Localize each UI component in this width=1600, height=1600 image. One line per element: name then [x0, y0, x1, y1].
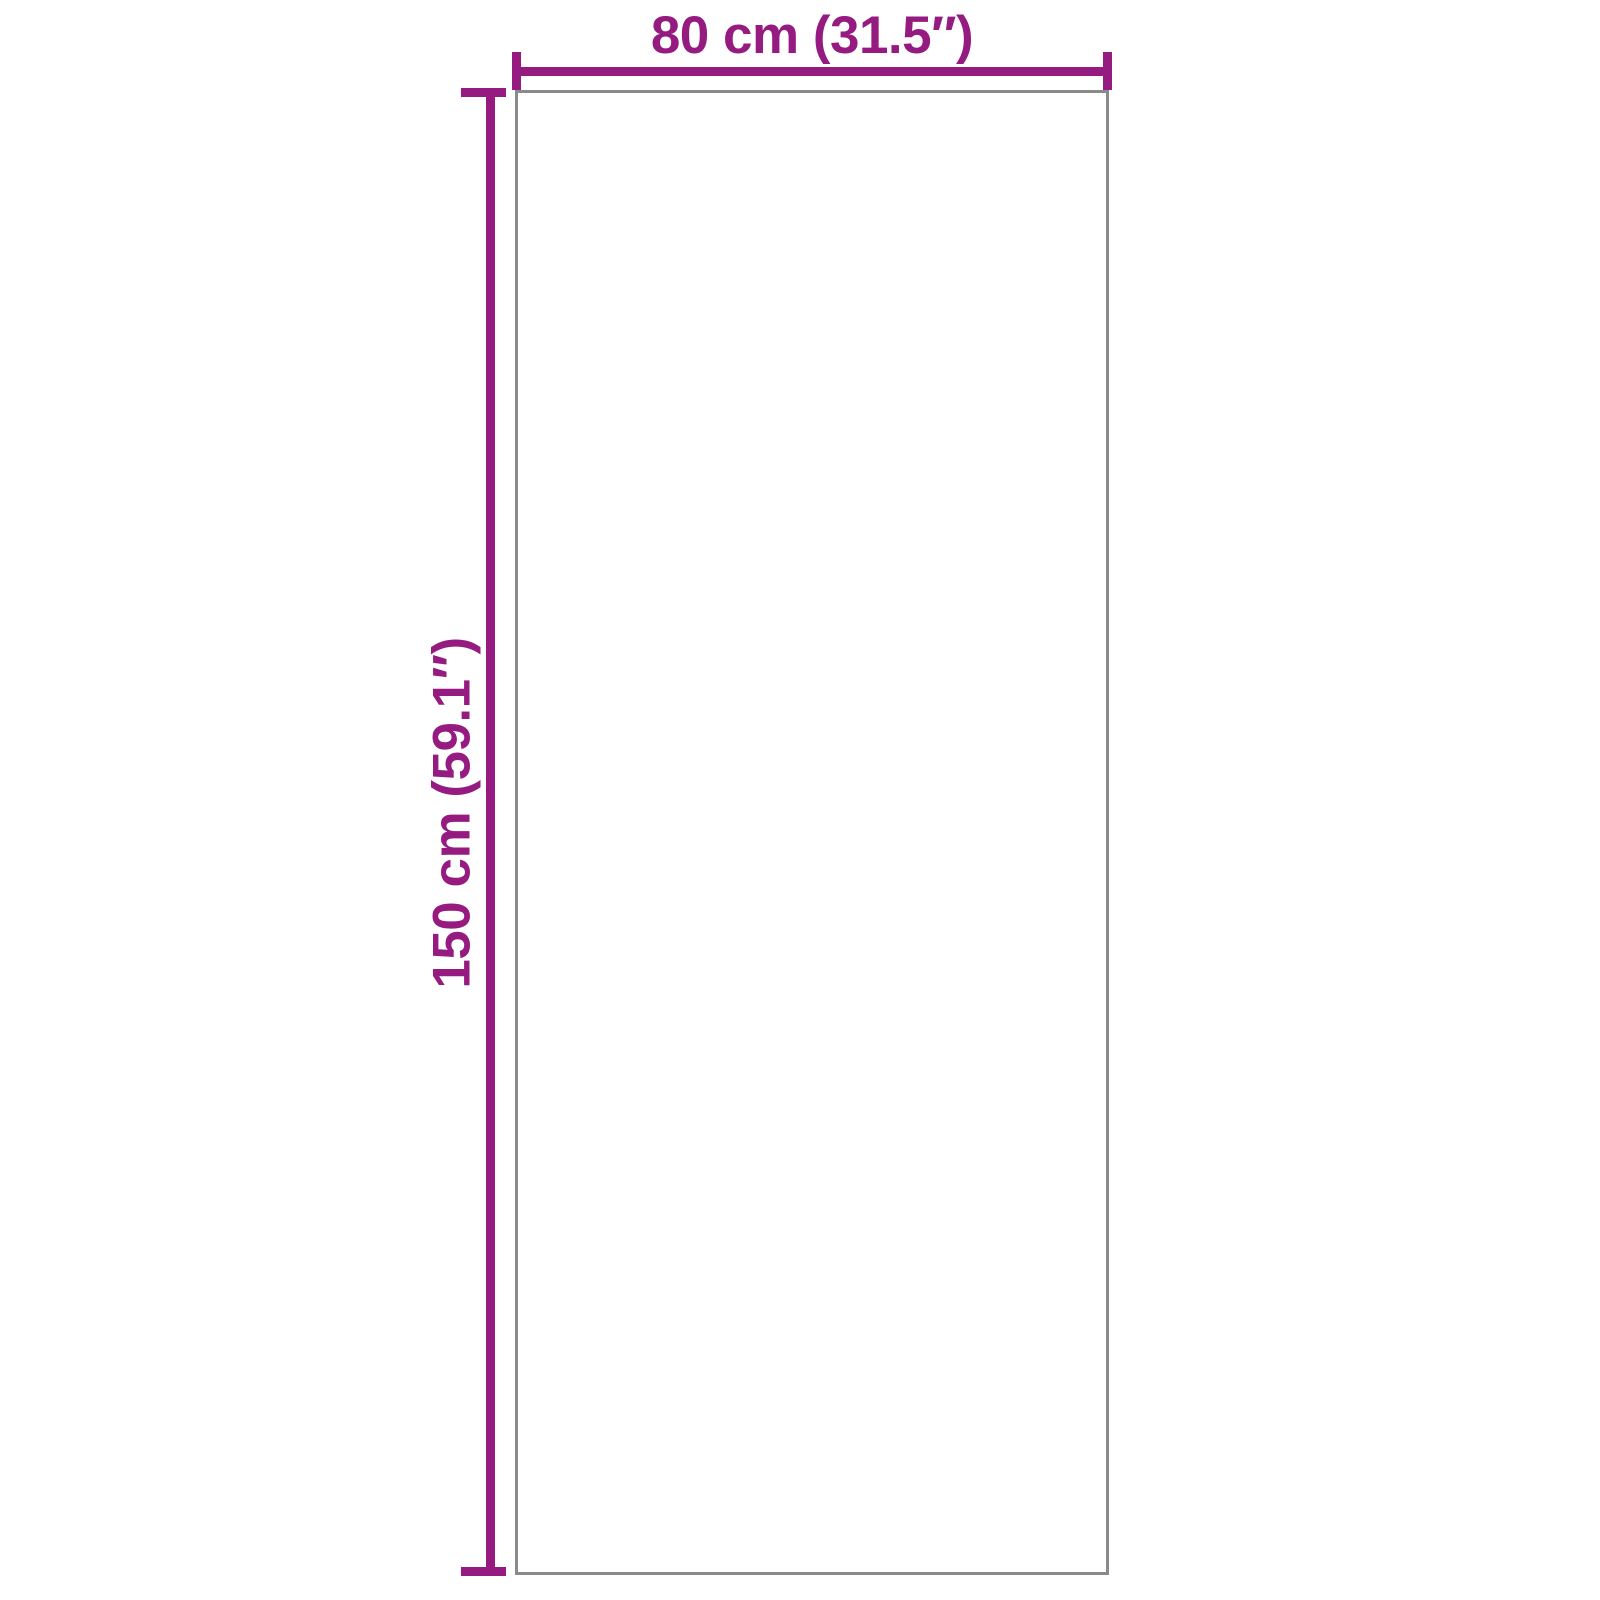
height-dimension-line [486, 92, 495, 1572]
width-dimension-label: 80 cm (31.5″) [512, 8, 1112, 64]
height-dimension-top-cap [461, 88, 506, 97]
width-dimension-line [512, 67, 1112, 76]
dimension-diagram: 80 cm (31.5″) 150 cm (59.1″) [0, 0, 1600, 1600]
height-dimension-label: 150 cm (59.1″) [422, 637, 483, 988]
product-outline [515, 90, 1109, 1575]
height-dimension-bottom-cap [461, 1567, 506, 1576]
